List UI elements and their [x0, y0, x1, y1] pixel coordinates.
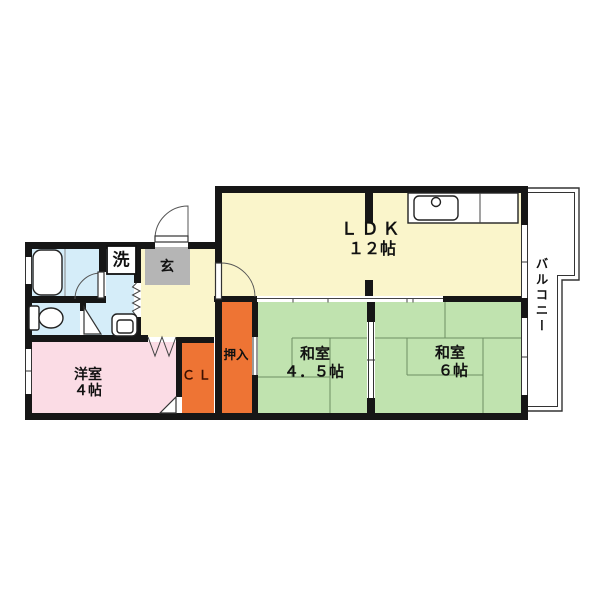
window-ldk-balcony	[521, 225, 528, 298]
label-washitsu45-size: ４．５帖	[284, 365, 344, 380]
label-ldk-size: １２帖	[348, 242, 396, 258]
floor-plan: ＬＤＫ １２帖 和室 ４．５帖 和室 ６帖 洋室 ４帖 押入 ＣＬ 玄 洗 バル…	[0, 0, 600, 600]
kitchen-counter	[408, 193, 518, 223]
label-yoshitsu-name: 洋室	[74, 367, 102, 381]
toilet	[29, 306, 63, 330]
label-washitsu45-name: 和室	[300, 347, 330, 362]
room-yoshitsu	[32, 342, 176, 413]
label-balcony: バルコニー	[534, 257, 547, 357]
window-yoshitsu	[25, 349, 32, 394]
fusuma-washitsu	[367, 322, 375, 398]
label-ldk-name: ＬＤＫ	[341, 221, 404, 238]
fusuma-oshiire	[252, 337, 258, 375]
window-bathroom	[25, 257, 32, 284]
label-oshiire: 押入	[223, 349, 248, 362]
bathtub	[33, 249, 65, 296]
sliding-door-track	[257, 296, 443, 303]
label-washitsu6-size: ６帖	[438, 364, 468, 379]
label-yoshitsu-size: ４帖	[74, 383, 102, 397]
label-closet: ＣＬ	[182, 369, 214, 382]
window-washitsu6-balcony	[521, 318, 528, 395]
washbasin	[112, 314, 137, 336]
label-laundry: 洗	[113, 252, 130, 269]
label-washitsu6-name: 和室	[435, 346, 465, 361]
entrance-door	[155, 206, 188, 242]
floor-plan-drawing	[0, 0, 600, 600]
label-genkan: 玄	[160, 259, 174, 273]
balcony-outline	[523, 188, 579, 411]
kitchen-faucet	[432, 198, 441, 207]
